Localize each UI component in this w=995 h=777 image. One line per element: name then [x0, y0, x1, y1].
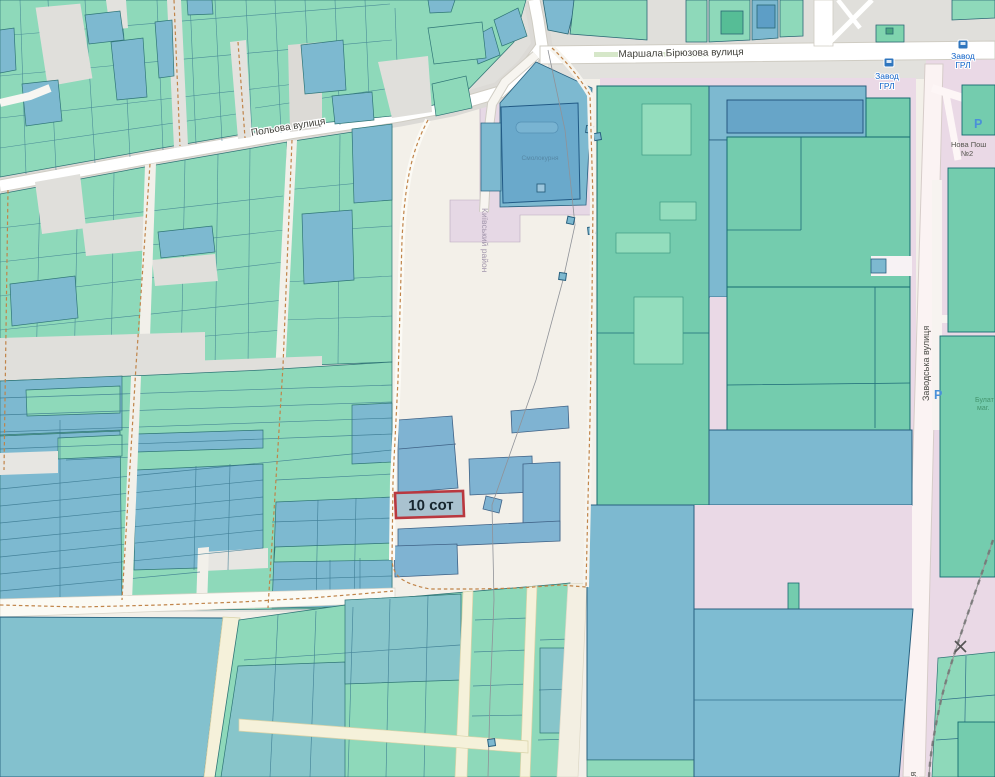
svg-text:Завод: Завод — [875, 71, 899, 81]
svg-text:ГРЛ: ГРЛ — [955, 60, 970, 70]
svg-text:№2: №2 — [961, 149, 973, 158]
svg-text:Р: Р — [934, 388, 942, 402]
svg-text:Маршала Бірюзова вулиця: Маршала Бірюзова вулиця — [618, 47, 743, 60]
svg-text:Заводська вулиця: Заводська вулиця — [921, 326, 931, 401]
svg-text:Нова Пош: Нова Пош — [951, 140, 986, 149]
svg-text:ГРЛ: ГРЛ — [879, 81, 894, 91]
svg-text:Смолокурня: Смолокурня — [522, 155, 559, 162]
svg-text:вулиця: вулиця — [908, 772, 918, 777]
svg-text:10 сот: 10 сот — [408, 497, 454, 515]
svg-text:Р: Р — [974, 117, 982, 131]
svg-text:Київський район: Київський район — [480, 208, 490, 273]
svg-text:Булат: Булат — [975, 397, 995, 404]
svg-text:маг.: маг. — [977, 405, 989, 412]
